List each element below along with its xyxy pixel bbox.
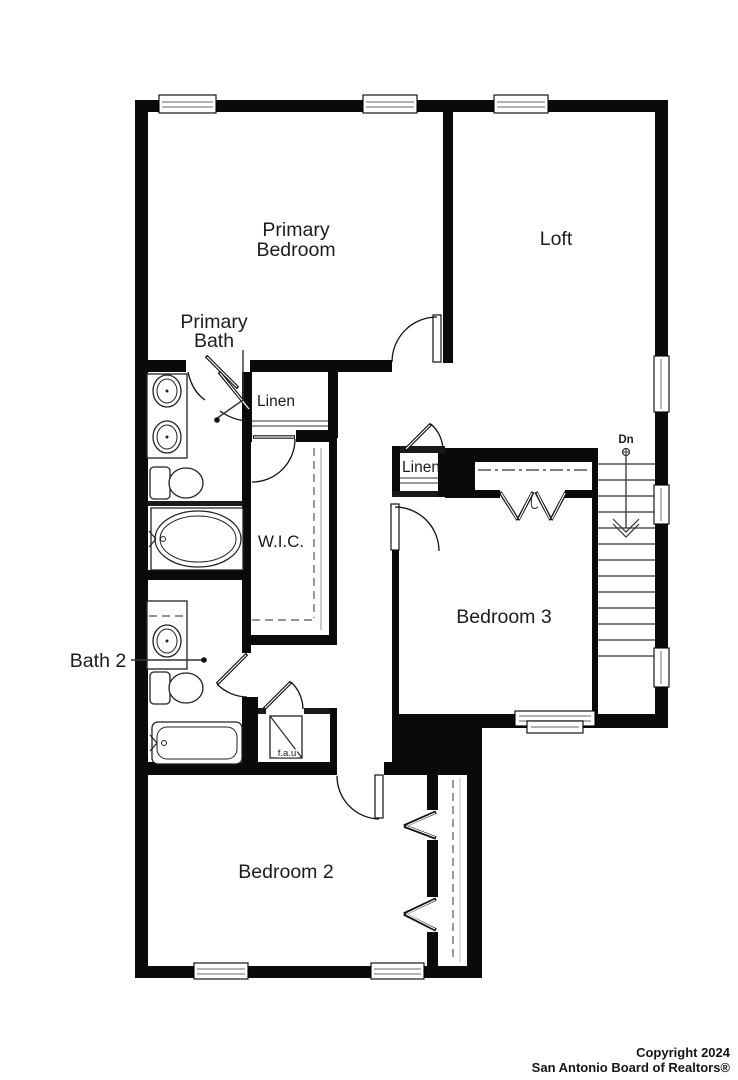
wall-primary-bottom-right [250,360,392,372]
window-right-3 [654,648,669,687]
wall-bed3-closet-front-left [475,490,500,498]
door-primary-bath [188,356,250,421]
label-linen-lower: Linen [402,459,440,476]
floor-plan-page: Primary Bedroom Loft Primary Bath Linen … [0,0,738,1080]
wall-bedroom2-bottom [135,966,482,978]
bath2-toilet [150,672,203,704]
wall-wic-top-left [242,430,252,442]
primary-bath-vanity [147,374,187,458]
door-bed3-closet-bifold [500,492,566,520]
primary-bath-toilet [150,467,203,499]
door-bedroom3 [391,504,439,551]
label-fau: f.a.u [278,748,297,759]
window-top-2 [363,95,417,113]
wall-wic-bottom [242,635,337,645]
copyright-line1: Copyright 2024 [636,1045,731,1060]
wall-tubroom-top [148,501,243,506]
label-primary-bedroom-line2: Bedroom [256,239,335,261]
wall-bed2-closet-stub-bottom [427,932,438,966]
wall-bath2-right-upper [242,580,251,653]
primary-bath-tub [149,508,243,570]
label-bedroom2: Bedroom 2 [238,861,333,883]
bath2-leader-dot [201,657,207,663]
door-bath2 [217,654,247,697]
door-bed2-closet-bottom [404,899,436,930]
window-top-3 [494,95,548,113]
wall-fau-right [330,708,337,762]
wall-linen2-bottom [392,491,445,497]
wall-bed2-closet-stub-top [427,775,438,810]
window-bed3-bottom [515,711,595,733]
label-primary-bath-line2: Bath [194,330,234,352]
door-bed2-closet-top [404,812,436,838]
wall-bed3-left [392,548,399,714]
label-bedroom3: Bedroom 3 [456,606,551,628]
wall-divider-primary-loft [443,112,453,363]
primary-bath-leader-dot [214,417,220,423]
bath2-vanity [147,601,187,669]
stairs-down-arrow [613,448,639,537]
wall-right-c [655,524,668,648]
fixtures [147,374,302,764]
door-fau [264,682,303,709]
label-loft: Loft [540,228,573,250]
label-wic: W.I.C. [258,532,304,551]
floor-plan-drawing: Primary Bedroom Loft Primary Bath Linen … [0,0,738,1080]
window-right-2 [654,485,669,524]
wall-wic-top-right [296,430,329,442]
window-bed2-bottom-2 [371,963,424,979]
label-bath2: Bath 2 [70,650,126,672]
copyright-line2: San Antonio Board of Realtors® [532,1060,731,1075]
wall-bed3-closet-left-stub [445,448,475,498]
wall-right-b [655,412,668,485]
bath2-tub [150,722,242,764]
window-top-1 [159,95,216,113]
staircase [598,448,655,656]
label-primary-bedroom-line1: Primary [262,219,329,241]
wall-linen2-left [392,446,400,497]
window-bed2-bottom-1 [194,963,248,979]
wall-linen1-right [328,372,338,438]
label-stairs-dn: Dn [618,434,633,446]
wall-bed2-closet-stub-mid [427,840,438,897]
door-primary-bedroom [392,315,441,362]
wall-bedroom2-top-right [384,762,482,775]
footer: Copyright 2024 San Antonio Board of Real… [532,1045,731,1075]
label-linen-upper: Linen [257,393,295,410]
window-right-1 [654,356,669,412]
wall-wic-right [329,438,337,645]
wall-primary-bottom-left [148,360,186,372]
door-wic [252,437,295,482]
wall-left [135,100,148,978]
wall-tubroom-bottom [135,570,251,580]
wall-right-a [655,100,668,356]
wall-stairs-left [592,448,598,714]
door-bedroom2 [337,775,383,819]
